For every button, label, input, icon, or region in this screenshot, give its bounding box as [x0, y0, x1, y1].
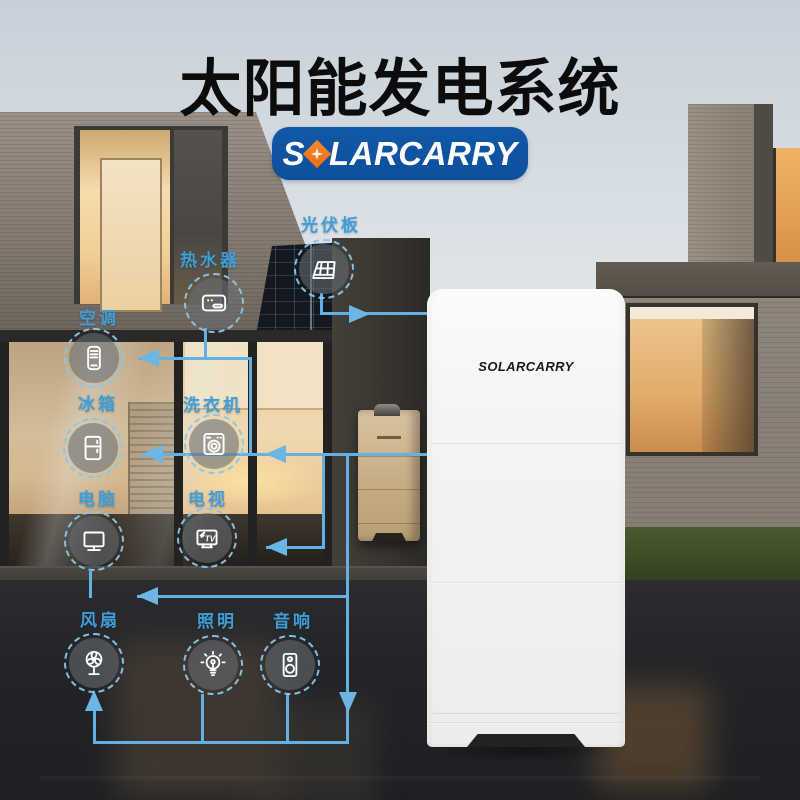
arrow-to-washer [265, 445, 286, 463]
node-computer [64, 511, 124, 571]
speaker-icon [273, 648, 307, 682]
solar-panel-icon [307, 252, 341, 286]
arrow-to-ac [138, 349, 159, 367]
inverter-seam [358, 456, 420, 457]
node-tv: TV [177, 508, 237, 568]
battery-base-line [433, 713, 619, 714]
label-pv: 光伏板 [256, 217, 406, 235]
connector-water-heater-drop [204, 328, 207, 359]
tv-icon: TV [190, 521, 224, 555]
ground-highlight [40, 776, 760, 779]
computer-monitor-icon [77, 524, 111, 558]
inverter-seam [358, 523, 420, 524]
right-upper-window [773, 148, 800, 264]
inverter-unit [358, 410, 420, 541]
battery-unit: SOLARCARRY [427, 289, 625, 747]
battery-brand-label: SOLARCARRY [427, 359, 625, 374]
right-house-tower [688, 104, 754, 264]
node-ac [64, 328, 124, 388]
arrow-to-computer [137, 587, 158, 605]
brand-logo: S LARCARRY [272, 127, 528, 180]
page-title: 太阳能发电系统 [0, 38, 800, 128]
logo-diamond-icon [303, 139, 331, 167]
node-lighting [183, 635, 243, 695]
label-tv: 电视 [133, 491, 283, 509]
ground-reflection [255, 700, 375, 800]
connector-to-computer [137, 595, 349, 598]
connector-fan-riser [93, 710, 96, 743]
window-mullion [0, 342, 9, 566]
arrow-into-battery [349, 305, 370, 323]
label-washer: 洗衣机 [138, 397, 288, 415]
arrow-to-fan [85, 690, 103, 711]
inverter-label-line [377, 436, 401, 439]
light-bulb-icon [196, 648, 230, 682]
fan-icon [77, 646, 111, 680]
battery-seam [429, 443, 623, 445]
washing-machine-icon [197, 427, 231, 461]
inverter-feet-notch [372, 533, 406, 541]
poster-canvas: SOLARCARRY 光伏板 热水器 [0, 0, 800, 800]
label-water-heater: 热水器 [135, 252, 285, 270]
node-audio [260, 635, 320, 695]
inverter-seam [358, 489, 420, 490]
connector-pv-to-battery [320, 312, 427, 315]
node-water-heater [184, 273, 244, 333]
inverter-handle [374, 404, 400, 416]
window-lit-pane [80, 130, 170, 304]
connector-audio-riser [286, 694, 289, 743]
air-conditioner-icon [77, 341, 111, 375]
lawn-strip [596, 527, 800, 580]
connector-computer-riser [89, 571, 92, 598]
label-audio: 音响 [218, 613, 368, 631]
battery-foot-notch [467, 734, 585, 747]
right-roof-band [596, 262, 800, 298]
svg-text:TV: TV [205, 535, 216, 544]
label-ac: 空调 [24, 310, 174, 328]
arrow-to-tv [266, 538, 287, 556]
water-heater-icon [197, 286, 231, 320]
right-lower-window [626, 303, 758, 456]
node-fan [64, 633, 124, 693]
fridge-icon [76, 431, 110, 465]
window-ceiling-strip [630, 307, 754, 319]
window-curtain-shadow [702, 319, 754, 452]
arrow-down [339, 692, 357, 713]
right-tower-glass [754, 104, 773, 264]
node-fridge [63, 418, 123, 478]
entry-door [100, 158, 162, 312]
battery-seam [429, 582, 623, 584]
connector-bottom-bus [93, 741, 349, 744]
connector-tv-drop [322, 454, 325, 548]
connector-lighting-riser [201, 694, 204, 743]
arrow-to-fridge [142, 445, 163, 463]
battery-base-line [429, 722, 623, 724]
node-pv [294, 239, 354, 299]
node-washer [184, 414, 244, 474]
logo-text-suffix: LARCARRY [329, 135, 518, 173]
